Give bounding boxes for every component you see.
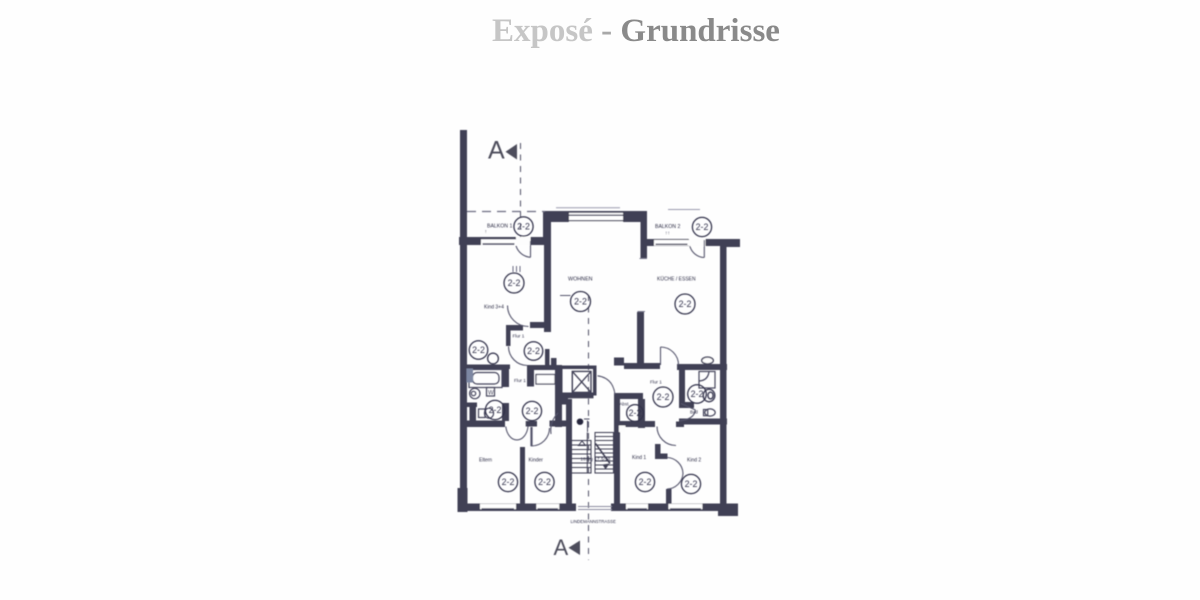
svg-text:LINDEMANNSTRASSE: LINDEMANNSTRASSE: [571, 519, 616, 524]
svg-text:Kinder: Kinder: [529, 458, 544, 464]
svg-text:2-2: 2-2: [685, 479, 698, 489]
svg-text:W: W: [488, 391, 494, 397]
svg-text:2-2: 2-2: [538, 477, 551, 487]
svg-text:A: A: [488, 137, 505, 165]
svg-text:Bad: Bad: [690, 410, 698, 415]
svg-text:2-2: 2-2: [691, 389, 704, 399]
svg-text:Kind 2: Kind 2: [687, 458, 701, 464]
svg-text:2-2: 2-2: [472, 345, 485, 355]
svg-text:2-2: 2-2: [489, 405, 502, 415]
svg-text:2-2: 2-2: [508, 278, 521, 288]
svg-text:2-2: 2-2: [657, 392, 670, 402]
svg-text:2-2: 2-2: [639, 477, 652, 487]
svg-text:A: A: [554, 535, 569, 560]
svg-text:2-2: 2-2: [696, 222, 709, 232]
svg-text:Flur 1: Flur 1: [513, 334, 525, 339]
svg-text:2-2: 2-2: [629, 408, 642, 418]
svg-text:2-2: 2-2: [502, 477, 515, 487]
svg-text:18Stg 17,5/28: 18Stg 17,5/28: [581, 457, 611, 462]
svg-text:2-2: 2-2: [526, 406, 539, 416]
svg-text:BALKON 1: BALKON 1: [487, 224, 512, 230]
svg-text:2-2: 2-2: [517, 222, 530, 232]
svg-text:2-2: 2-2: [574, 297, 587, 307]
svg-text:WOHNEN: WOHNEN: [568, 277, 593, 283]
svg-text:↑↑: ↑↑: [665, 231, 670, 237]
svg-text:Eltern: Eltern: [479, 458, 492, 464]
svg-text:2-2: 2-2: [679, 299, 692, 309]
svg-text:Flur 1: Flur 1: [650, 380, 662, 385]
svg-text:2-2: 2-2: [527, 346, 540, 356]
svg-text:Kind 3+4: Kind 3+4: [484, 305, 504, 311]
svg-text:Flur 1: Flur 1: [514, 378, 526, 383]
svg-text:Kind 1: Kind 1: [632, 455, 646, 461]
svg-text:↑: ↑: [485, 229, 488, 235]
svg-text:Abst.: Abst.: [620, 402, 630, 407]
svg-text:KÜCHE / ESSEN: KÜCHE / ESSEN: [657, 276, 696, 283]
svg-text:BALKON 2: BALKON 2: [655, 224, 680, 230]
